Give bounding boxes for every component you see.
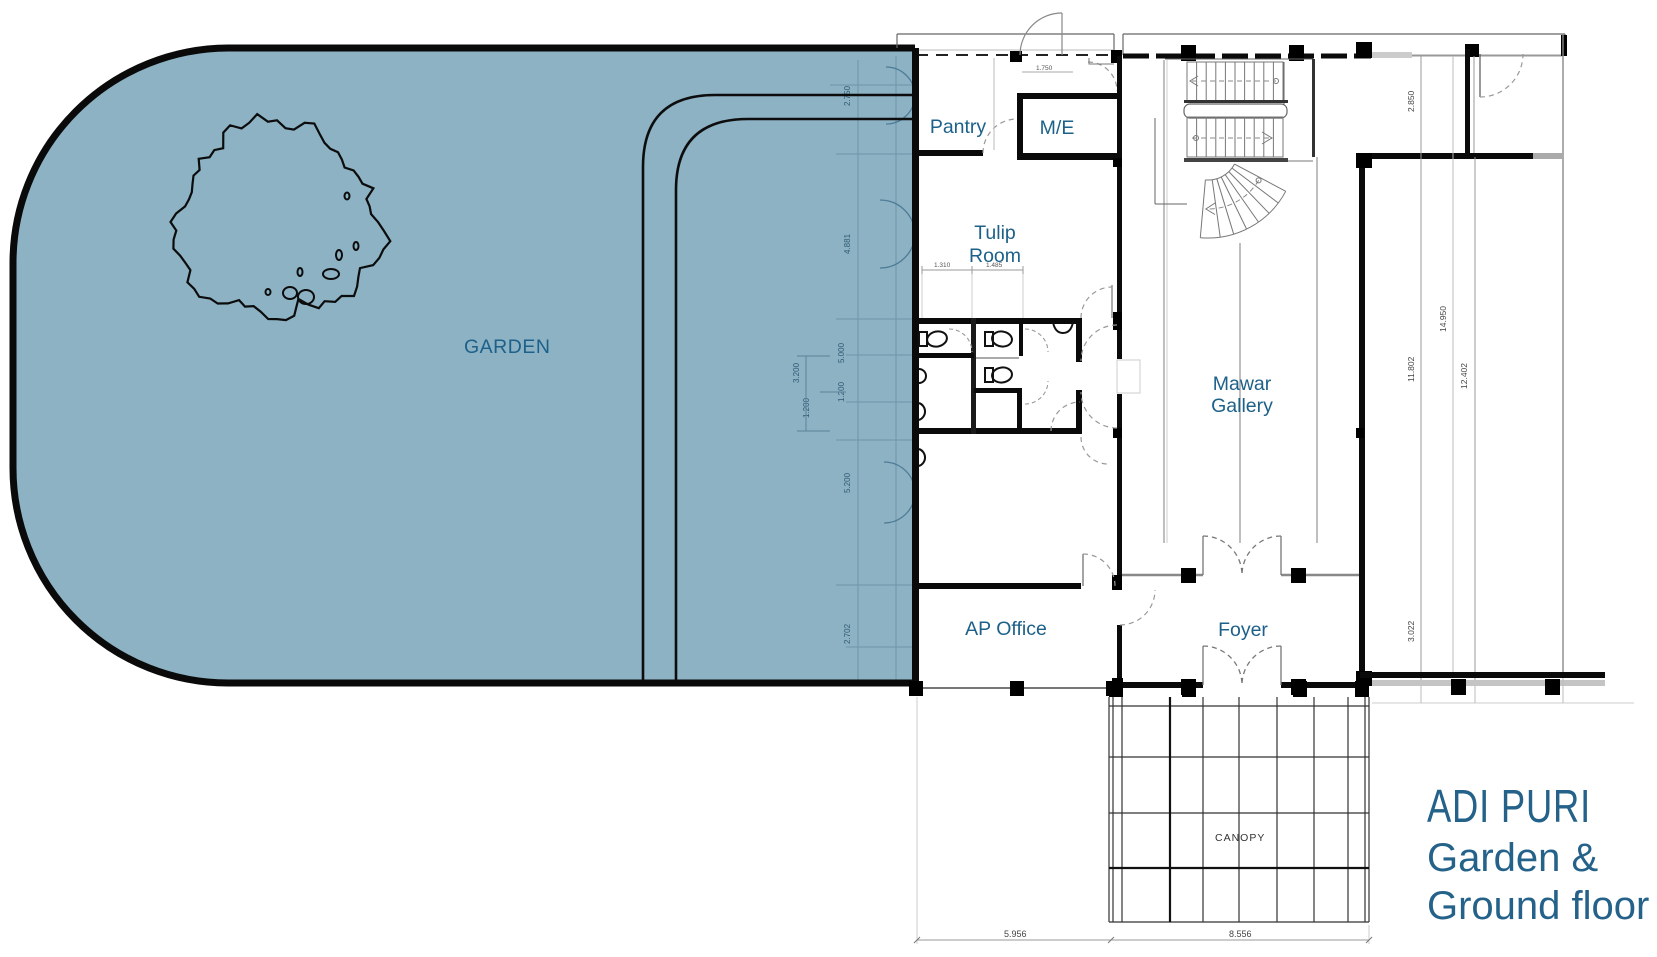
svg-text:M/E: M/E bbox=[1040, 117, 1075, 139]
svg-text:AP Office: AP Office bbox=[965, 618, 1047, 640]
svg-text:5.000: 5.000 bbox=[837, 342, 846, 363]
svg-text:5.956: 5.956 bbox=[1004, 929, 1027, 939]
svg-text:1.310: 1.310 bbox=[934, 262, 951, 269]
svg-text:1.750: 1.750 bbox=[1036, 65, 1053, 72]
svg-text:2.850: 2.850 bbox=[1406, 90, 1416, 112]
svg-text:Pantry: Pantry bbox=[930, 116, 987, 138]
svg-text:12.402: 12.402 bbox=[1459, 363, 1469, 389]
svg-text:Garden &: Garden & bbox=[1427, 836, 1599, 880]
svg-text:Mawar: Mawar bbox=[1213, 373, 1272, 395]
svg-text:Gallery: Gallery bbox=[1211, 395, 1273, 417]
svg-text:CANOPY: CANOPY bbox=[1215, 832, 1265, 844]
svg-text:3.022: 3.022 bbox=[1406, 620, 1416, 642]
svg-text:11.802: 11.802 bbox=[1406, 356, 1416, 382]
svg-text:3.200: 3.200 bbox=[792, 362, 801, 383]
svg-text:5.200: 5.200 bbox=[843, 472, 852, 493]
svg-text:GARDEN: GARDEN bbox=[464, 336, 550, 358]
svg-text:ADI PURI: ADI PURI bbox=[1427, 780, 1591, 832]
svg-text:4.881: 4.881 bbox=[843, 233, 852, 254]
svg-text:Tulip: Tulip bbox=[974, 222, 1016, 244]
svg-text:8.556: 8.556 bbox=[1229, 929, 1252, 939]
svg-text:Room: Room bbox=[969, 245, 1021, 267]
svg-text:14.950: 14.950 bbox=[1438, 306, 1448, 332]
svg-text:Ground floor: Ground floor bbox=[1427, 884, 1649, 928]
svg-text:Foyer: Foyer bbox=[1218, 619, 1268, 641]
svg-text:2.702: 2.702 bbox=[843, 623, 852, 644]
